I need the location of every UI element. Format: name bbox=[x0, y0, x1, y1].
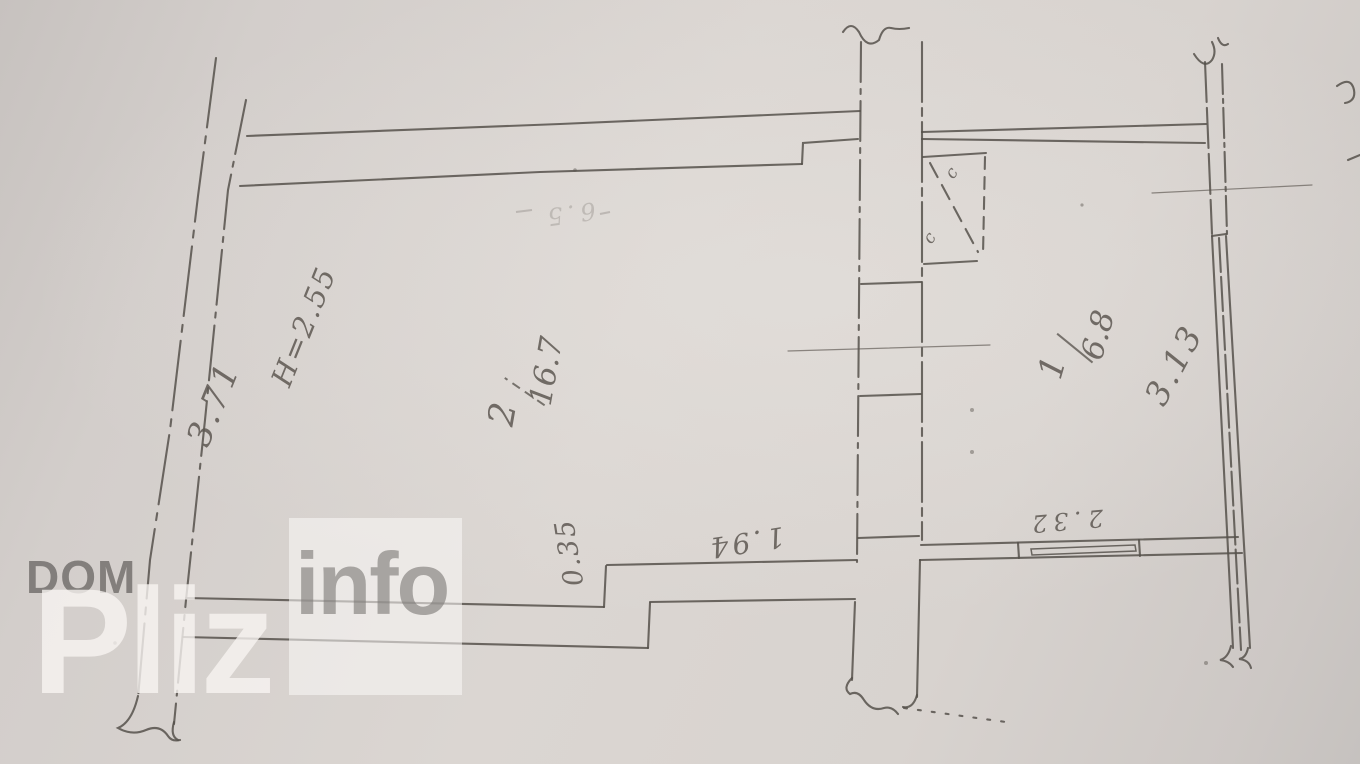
wall-break-bottom-left bbox=[846, 678, 898, 714]
stray-pen-curl bbox=[1337, 82, 1354, 103]
top-wall bbox=[240, 111, 860, 186]
room1-number: 1 bbox=[1030, 352, 1074, 384]
faint-dimension: 6.5 bbox=[541, 196, 598, 231]
wall-break-top-right bbox=[1194, 42, 1215, 64]
wall-break-top bbox=[843, 26, 909, 44]
closet-mark: c bbox=[941, 163, 963, 183]
room2-number: 2 bbox=[481, 399, 526, 430]
room1-label: 1 6.8 bbox=[1030, 296, 1122, 393]
window-sash bbox=[1031, 545, 1136, 555]
room1-area: 6.8 bbox=[1074, 306, 1122, 363]
dimension-lines bbox=[788, 185, 1312, 351]
dim-left-wall: 3.71 bbox=[179, 356, 249, 452]
wall-break-bottom-right bbox=[903, 695, 917, 707]
bottom-left-wall bbox=[183, 560, 857, 648]
scanned-floorplan-photo: 3.71 H=2.55 2 16.7 1 6.8 3.13 0.35 1.94 … bbox=[0, 0, 1360, 764]
scan-specks bbox=[113, 168, 1208, 665]
watermark-pliz: Pliz bbox=[32, 566, 270, 716]
watermark-info-box: info bbox=[289, 518, 462, 695]
stray-pen-dash bbox=[1348, 155, 1360, 160]
bottom-right-wall bbox=[920, 537, 1242, 560]
room2-area: 16.7 bbox=[523, 334, 570, 408]
room2-label: 2 16.7 bbox=[481, 327, 571, 436]
dim-wall-offset: 0.35 bbox=[549, 516, 590, 588]
dim-opening-width: 1.94 bbox=[704, 520, 787, 565]
watermark-info: info bbox=[295, 540, 448, 628]
dim-ceiling-height: H=2.55 bbox=[264, 261, 343, 392]
dim-right-wall: 3.13 bbox=[1137, 318, 1212, 412]
room1-top-wall bbox=[922, 124, 1206, 143]
right-wall bbox=[1194, 38, 1360, 668]
wall-break-bottom bbox=[1220, 646, 1233, 667]
dim-window-width: 2.32 bbox=[1025, 504, 1106, 539]
